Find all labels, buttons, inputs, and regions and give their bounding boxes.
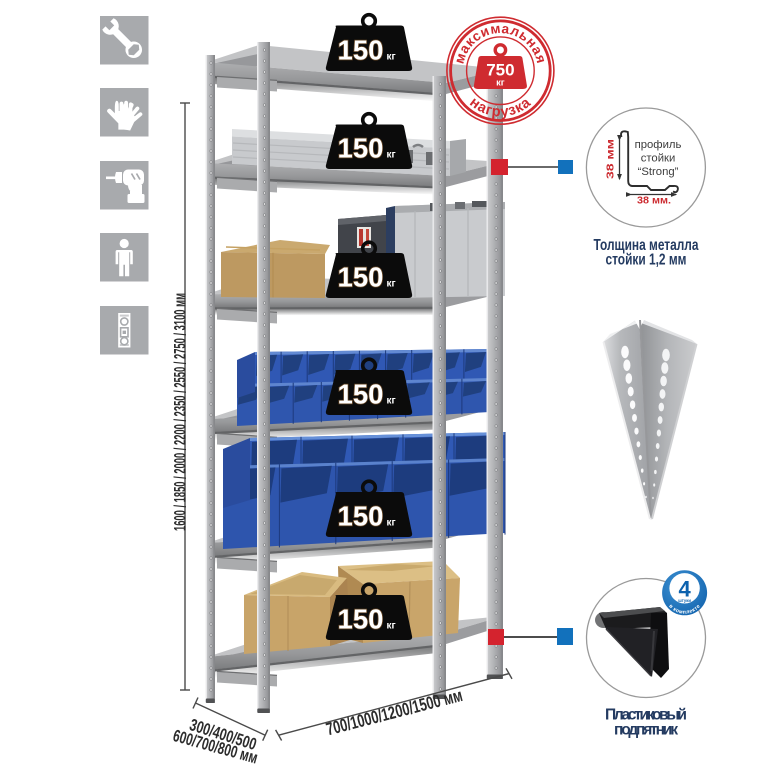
svg-text:профиль: профиль bbox=[635, 139, 682, 151]
svg-text:1600 / 1850 / 2000 / 2200 / 23: 1600 / 1850 / 2000 / 2200 / 2350 / 2550 … bbox=[171, 293, 190, 531]
svg-text:150: 150 bbox=[338, 133, 384, 164]
svg-text:кг: кг bbox=[387, 621, 396, 632]
svg-text:стойки 1,2 мм: стойки 1,2 мм bbox=[606, 252, 687, 269]
svg-text:38 мм: 38 мм bbox=[606, 139, 617, 179]
svg-text:стойки: стойки bbox=[641, 153, 676, 165]
svg-text:38 мм.: 38 мм. bbox=[637, 196, 671, 207]
svg-text:150: 150 bbox=[338, 262, 384, 293]
svg-text:кг: кг bbox=[387, 518, 396, 529]
svg-text:кг: кг bbox=[496, 78, 505, 88]
svg-text:подпятник: подпятник bbox=[614, 722, 678, 739]
svg-text:кг: кг bbox=[387, 396, 396, 407]
svg-text:150: 150 bbox=[338, 35, 384, 66]
svg-text:кг: кг bbox=[387, 52, 396, 63]
svg-text:кг: кг bbox=[387, 150, 396, 161]
svg-text:150: 150 bbox=[338, 379, 384, 410]
svg-text:150: 150 bbox=[338, 604, 384, 635]
svg-text:кг: кг bbox=[387, 279, 396, 290]
svg-text:штуки: штуки bbox=[678, 598, 691, 603]
svg-text:150: 150 bbox=[338, 501, 384, 532]
svg-text:“Strong”: “Strong” bbox=[638, 166, 679, 178]
